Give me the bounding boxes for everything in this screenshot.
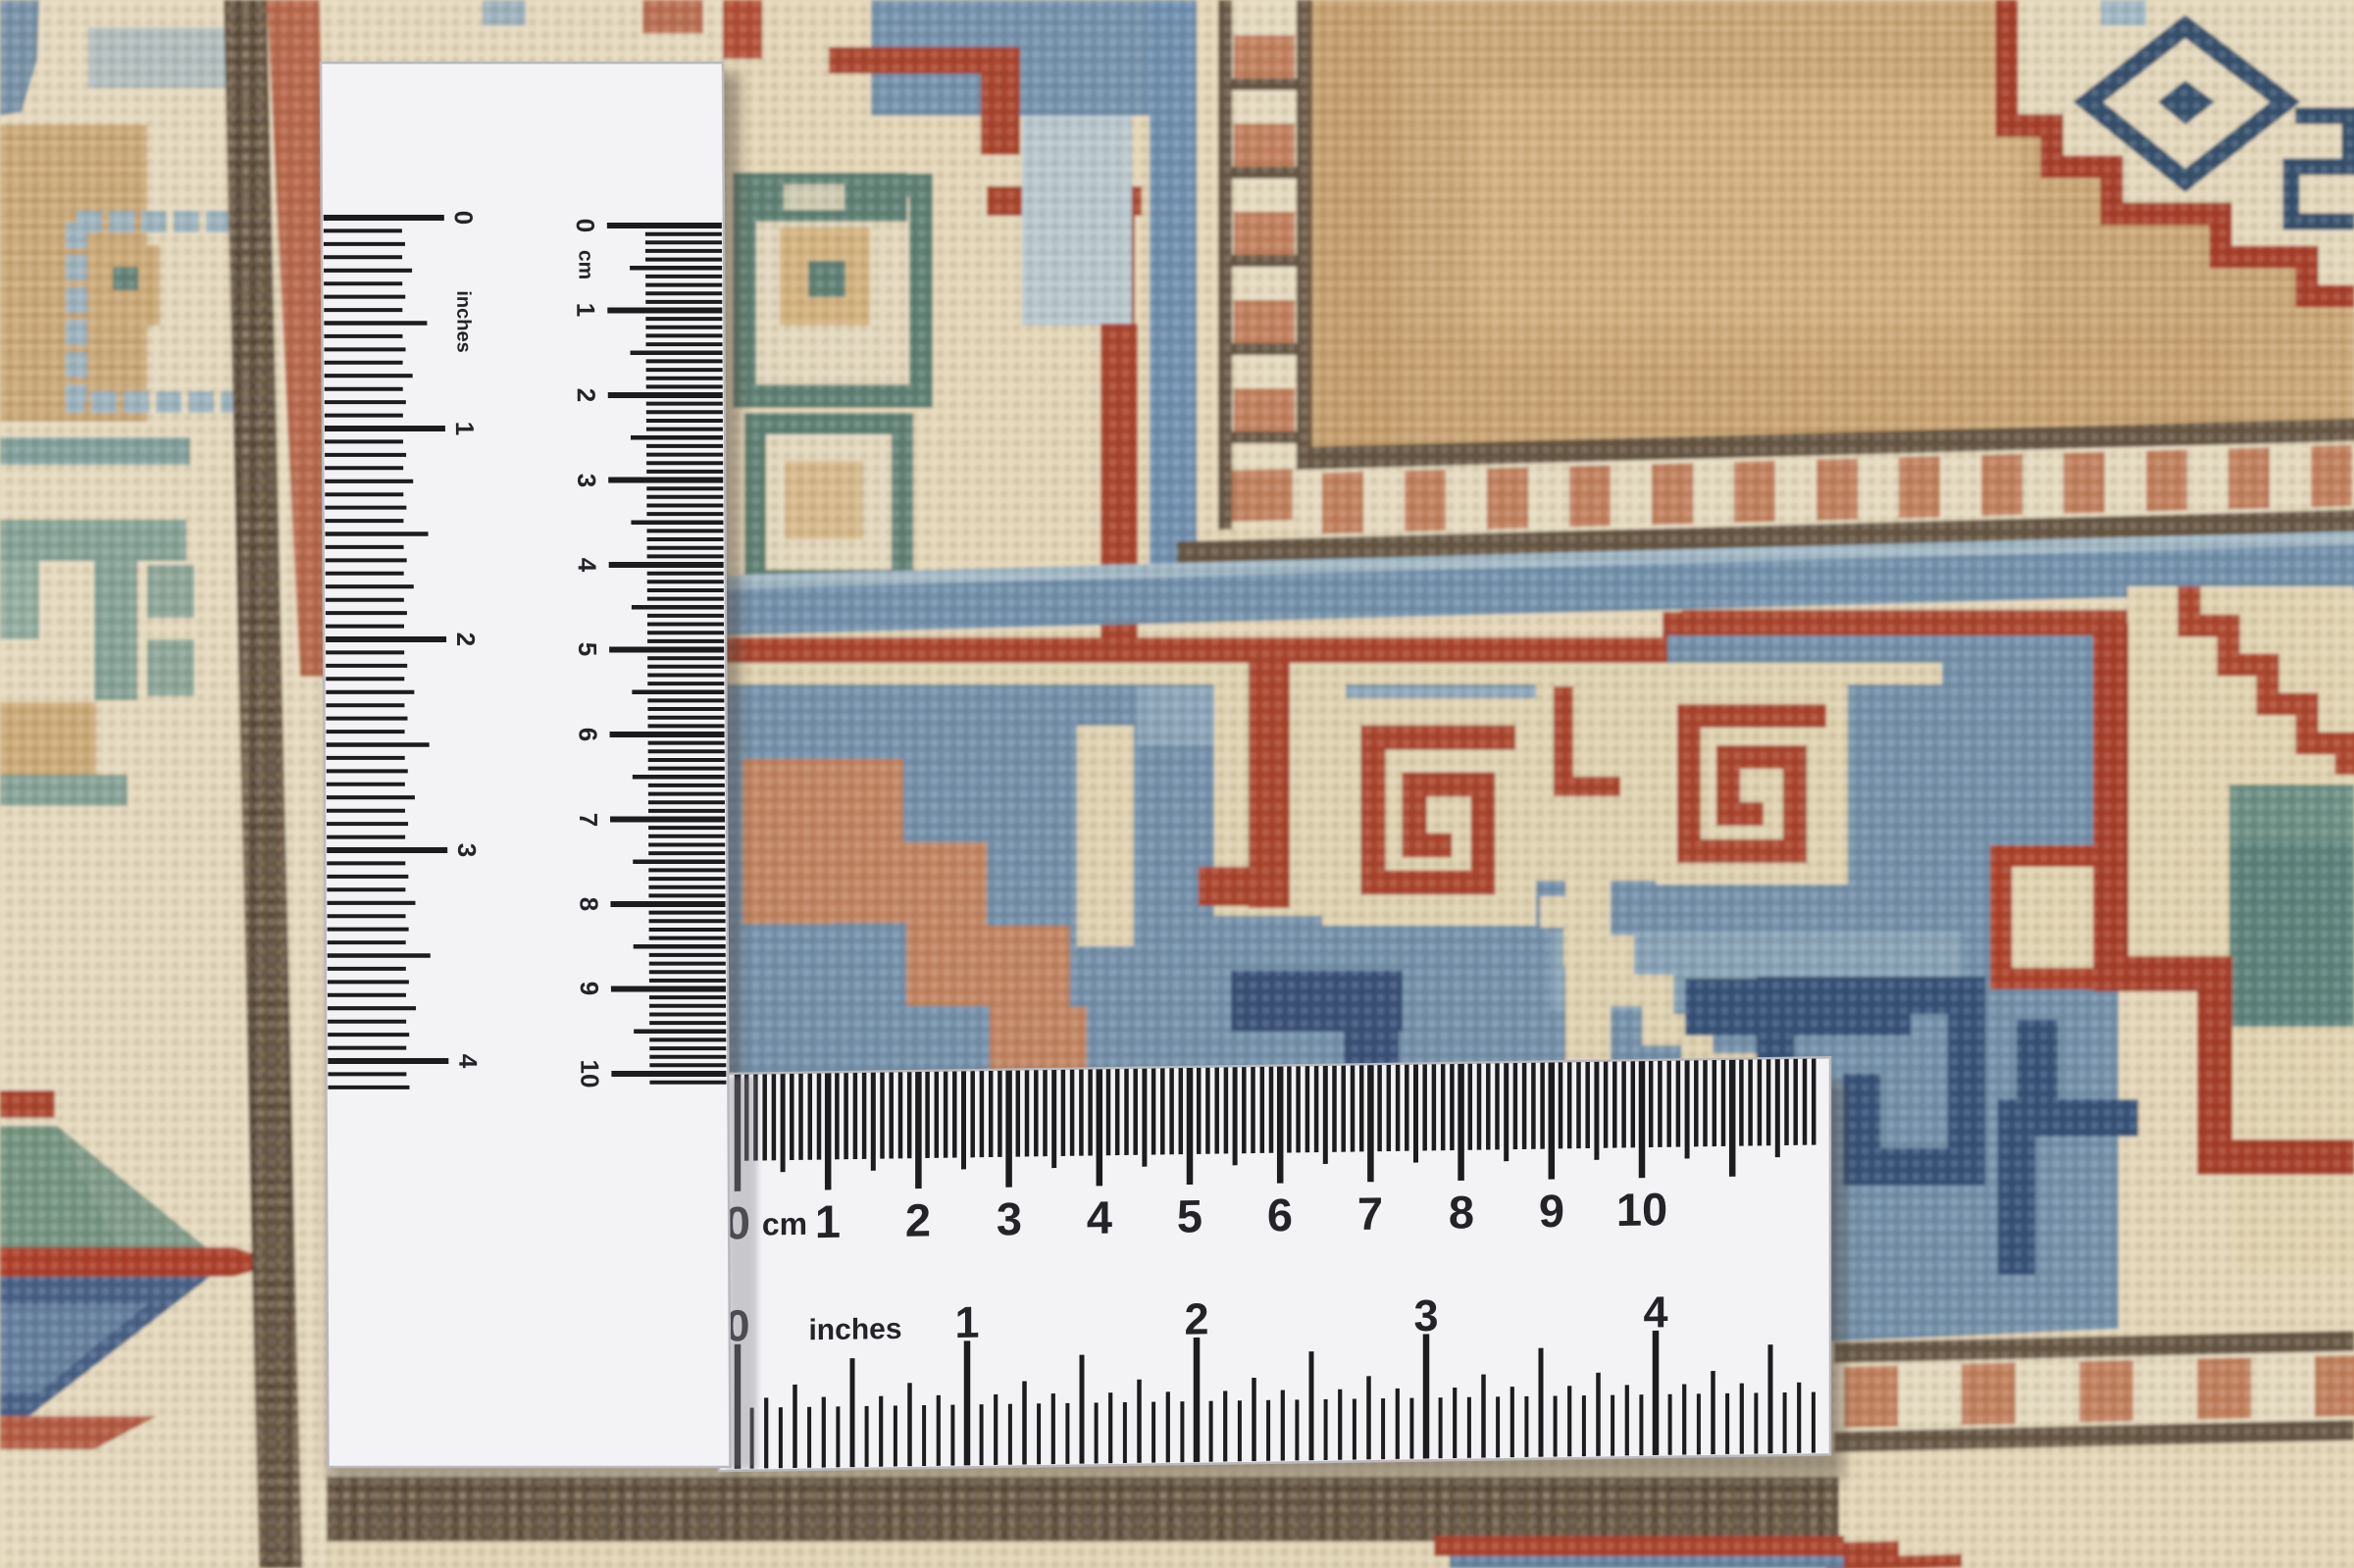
svg-text:10: 10 — [575, 1060, 604, 1088]
svg-text:6: 6 — [1267, 1189, 1293, 1240]
svg-text:2: 2 — [1184, 1293, 1208, 1343]
svg-text:0: 0 — [449, 211, 479, 225]
svg-text:7: 7 — [574, 813, 603, 827]
svg-text:9: 9 — [575, 982, 604, 995]
svg-text:2: 2 — [572, 388, 601, 402]
svg-text:8: 8 — [1449, 1186, 1474, 1238]
svg-text:6: 6 — [574, 728, 603, 741]
svg-text:1: 1 — [571, 303, 600, 317]
svg-text:inches: inches — [452, 290, 474, 352]
svg-text:4: 4 — [453, 1054, 483, 1069]
svg-text:0: 0 — [571, 219, 600, 232]
svg-text:7: 7 — [1357, 1188, 1383, 1239]
svg-text:cm: cm — [574, 250, 596, 279]
svg-text:8: 8 — [574, 897, 603, 911]
svg-text:10: 10 — [1616, 1183, 1667, 1236]
svg-text:9: 9 — [1539, 1185, 1564, 1237]
svg-text:2: 2 — [905, 1193, 931, 1245]
svg-text:1: 1 — [815, 1195, 841, 1247]
svg-text:2: 2 — [451, 632, 481, 646]
svg-text:4: 4 — [573, 558, 602, 573]
svg-text:3: 3 — [1413, 1290, 1438, 1340]
svg-text:5: 5 — [573, 642, 602, 656]
svg-text:inches: inches — [808, 1313, 901, 1346]
svg-text:4: 4 — [1643, 1287, 1667, 1337]
svg-text:5: 5 — [1177, 1189, 1203, 1241]
svg-text:1: 1 — [450, 422, 480, 435]
svg-text:1: 1 — [954, 1297, 979, 1347]
svg-text:3: 3 — [572, 474, 601, 487]
svg-text:cm: cm — [762, 1206, 807, 1242]
svg-text:4: 4 — [1087, 1191, 1112, 1243]
svg-text:3: 3 — [997, 1192, 1022, 1244]
svg-text:3: 3 — [452, 843, 482, 857]
